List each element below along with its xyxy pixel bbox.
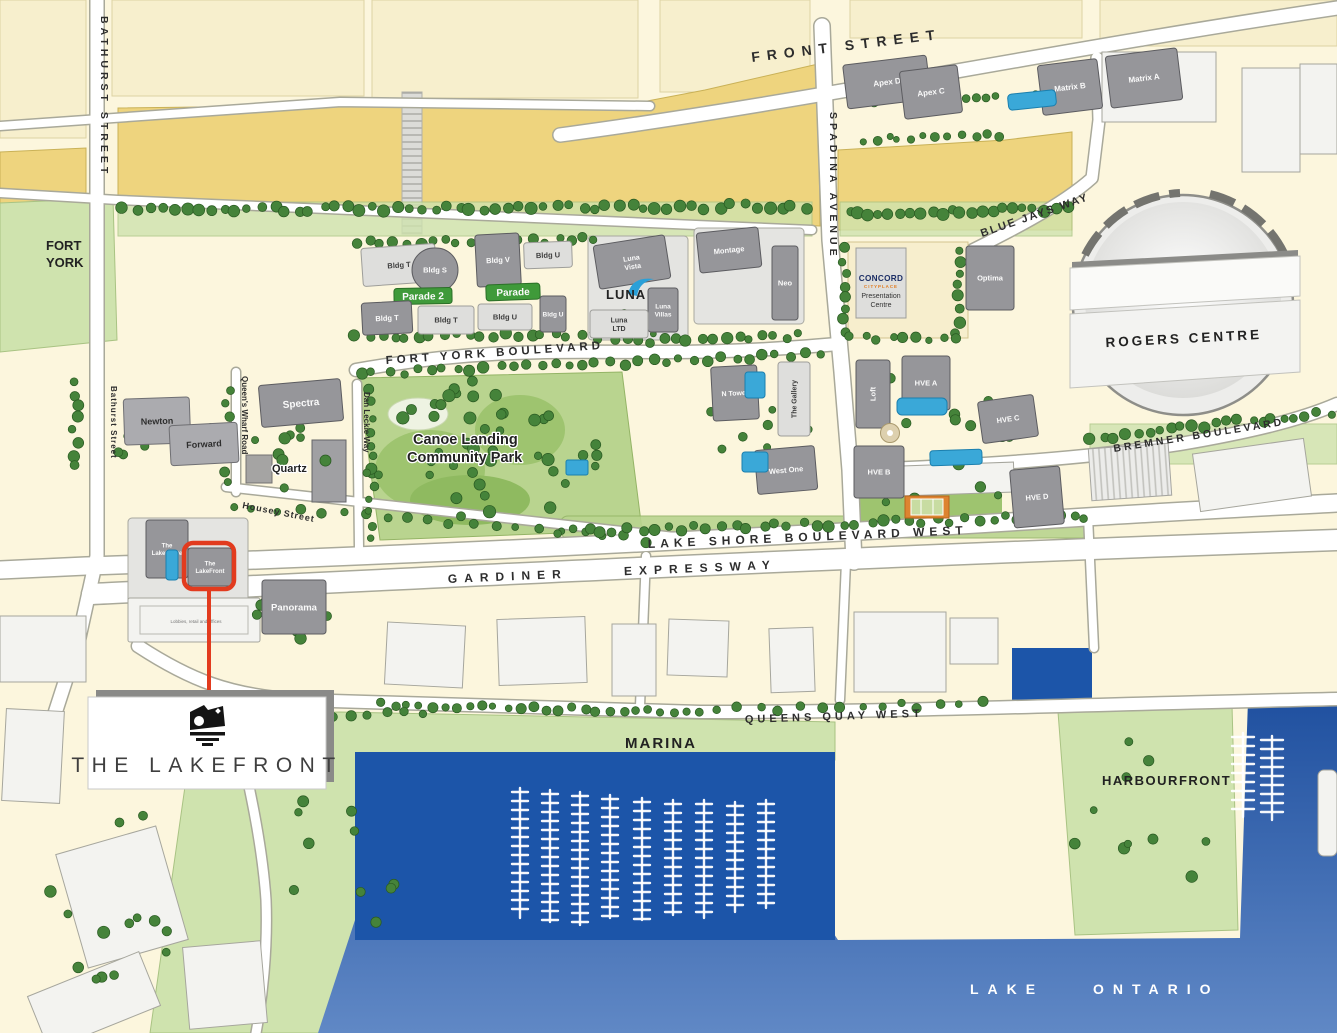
tree-icon: [763, 420, 773, 430]
tree-icon: [1135, 429, 1144, 438]
tree-icon: [400, 707, 409, 716]
tree-icon: [480, 491, 489, 500]
tree-icon: [632, 707, 640, 715]
tree-icon: [745, 355, 755, 365]
tree-icon: [967, 208, 978, 219]
tree-icon: [680, 335, 691, 346]
tree-icon: [289, 885, 298, 894]
tree-icon: [953, 280, 962, 289]
tree-icon: [279, 433, 291, 445]
tree-icon: [943, 133, 950, 140]
building-bldg-u-2: Bldg U: [478, 304, 532, 330]
tree-icon: [92, 975, 100, 983]
queens-wharf-road-label: Queen's Wharf Road: [240, 376, 249, 454]
site-map: Apex DApex CMatrix BMatrix ABldg TBldg S…: [0, 0, 1337, 1033]
tree-icon: [977, 206, 989, 218]
tree-icon: [956, 247, 963, 254]
tree-icon: [302, 206, 312, 216]
lobbies-note-label: Lobbies, retail and offices: [171, 619, 223, 624]
tree-icon: [242, 205, 250, 213]
concord-presentation-centre: CONCORD CITYPLACE Presentation Centre: [856, 248, 906, 318]
tree-icon: [590, 707, 600, 717]
tree-icon: [683, 708, 690, 715]
tree-icon: [356, 887, 365, 896]
tree-icon: [975, 516, 985, 526]
tree-icon: [456, 512, 465, 521]
tree-icon: [620, 360, 631, 371]
bathurst-street-south-label: Bathurst Street: [109, 386, 118, 459]
building-hve-b: HVE B: [854, 446, 904, 498]
tree-icon: [1007, 203, 1018, 214]
tree-icon: [442, 235, 450, 243]
tree-icon: [1083, 433, 1095, 445]
tree-icon: [975, 482, 986, 493]
tree-icon: [490, 204, 501, 215]
tree-icon: [769, 519, 778, 528]
tree-icon: [387, 237, 398, 248]
lake-ontario-label: LAKE ONTARIO: [970, 981, 1220, 997]
building-label: Parade: [496, 287, 530, 299]
tree-icon: [252, 610, 261, 619]
tree-icon: [896, 209, 906, 219]
tree-icon: [589, 236, 597, 244]
building-bldg-s: Bldg S: [412, 248, 458, 292]
tree-icon: [569, 525, 577, 533]
building-label: Bldg U: [536, 250, 560, 260]
tree-icon: [633, 356, 643, 366]
tree-icon: [992, 93, 999, 100]
tree-icon: [443, 390, 455, 402]
tree-icon: [1289, 414, 1297, 422]
tree-icon: [280, 484, 288, 492]
tree-icon: [741, 199, 750, 208]
quartz-label: Quartz: [272, 463, 307, 475]
building-label: Bldg U: [543, 311, 564, 318]
tree-icon: [149, 915, 160, 926]
building-label: Bldg T: [434, 316, 458, 325]
tree-icon: [649, 354, 660, 365]
tree-icon: [433, 206, 441, 214]
tree-icon: [115, 818, 124, 827]
tree-icon: [663, 359, 671, 367]
tree-icon: [68, 425, 76, 433]
tree-icon: [468, 391, 479, 402]
tree-icon: [840, 292, 851, 303]
tree-icon: [383, 707, 392, 716]
building-the-gallery: The Gallery: [778, 362, 810, 436]
tree-icon: [350, 827, 359, 836]
tree-icon: [639, 205, 647, 213]
tree-icon: [628, 199, 639, 210]
tree-icon: [698, 204, 709, 215]
building-label: Panorama: [271, 602, 318, 613]
tree-icon: [794, 329, 801, 336]
tree-icon: [365, 507, 372, 514]
tree-icon: [661, 204, 672, 215]
tree-icon: [367, 368, 375, 376]
tree-icon: [1156, 426, 1164, 434]
tree-icon: [539, 203, 547, 211]
tree-icon: [221, 399, 229, 407]
tree-icon: [392, 334, 400, 342]
tree-icon: [451, 493, 462, 504]
tree-icon: [414, 365, 422, 373]
tree-icon: [591, 462, 599, 470]
tree-icon: [764, 202, 776, 214]
tree-icon: [752, 203, 762, 213]
tree-icon: [529, 702, 539, 712]
tree-icon: [405, 205, 413, 213]
concord-brand: CONCORD: [859, 274, 903, 283]
tree-icon: [341, 508, 348, 515]
tree-icon: [607, 528, 616, 537]
building-bldg-u-1: Bldg U: [524, 241, 573, 269]
tree-icon: [348, 330, 359, 341]
tree-icon: [1202, 837, 1210, 845]
tree-icon: [621, 707, 630, 716]
tree-icon: [873, 136, 882, 145]
tree-icon: [369, 452, 377, 460]
tree-icon: [973, 133, 981, 141]
building-bldg-v: Bldg V: [475, 233, 522, 287]
building-label: Luna: [655, 304, 671, 311]
tree-icon: [920, 132, 926, 138]
tree-icon: [503, 203, 513, 213]
spadina-avenue-label: SPADINA AVENUE: [827, 112, 839, 260]
tree-icon: [561, 333, 569, 341]
tree-icon: [356, 368, 367, 379]
building-forward: Forward: [169, 422, 239, 466]
tree-icon: [73, 437, 84, 448]
tree-icon: [869, 519, 878, 528]
tree-icon: [468, 467, 478, 477]
tree-icon: [258, 203, 267, 212]
concord-line1: Presentation: [861, 293, 900, 300]
tree-icon: [782, 522, 791, 531]
tree-icon: [955, 304, 964, 313]
tree-icon: [553, 706, 563, 716]
building-panorama: Panorama: [262, 580, 326, 634]
tree-icon: [402, 512, 412, 522]
building-loft: Loft: [856, 360, 890, 428]
tree-icon: [962, 95, 970, 103]
tree-icon: [182, 203, 194, 215]
tree-icon: [738, 432, 747, 441]
tree-icon: [529, 414, 541, 426]
tree-icon: [649, 524, 660, 535]
tree-icon: [1175, 422, 1184, 431]
dan-leckie-way-label: Dan Leckie Way: [362, 392, 371, 453]
building-apex-c: Apex C: [899, 65, 962, 120]
tree-icon: [375, 239, 384, 248]
marina-basin: [355, 752, 835, 940]
tree-icon: [322, 203, 330, 211]
tree-icon: [786, 352, 795, 361]
tree-icon: [423, 515, 432, 524]
tree-icon: [915, 208, 926, 219]
building-label: The Gallery: [792, 380, 799, 418]
building-hve-c: HVE C: [977, 394, 1038, 443]
tree-icon: [695, 708, 703, 716]
tree-icon: [644, 705, 652, 713]
tree-icon: [589, 358, 598, 367]
tree-icon: [376, 698, 384, 706]
tree-icon: [953, 207, 965, 219]
tree-icon: [745, 336, 752, 343]
tree-icon: [721, 332, 733, 344]
building-label: Optima: [977, 274, 1004, 283]
tree-icon: [451, 239, 459, 247]
tree-icon: [317, 508, 327, 518]
tree-icon: [231, 504, 238, 511]
tree-icon: [1069, 838, 1080, 849]
tree-icon: [303, 838, 314, 849]
tree-icon: [400, 334, 408, 342]
tree-icon: [1071, 512, 1079, 520]
tree-icon: [64, 910, 72, 918]
tree-icon: [146, 203, 156, 213]
building-the-lakefront-bldg: TheLakeFront: [188, 548, 232, 586]
tree-icon: [674, 200, 686, 212]
tree-icon: [386, 367, 395, 376]
tree-icon: [955, 257, 966, 268]
tree-icon: [474, 332, 484, 342]
harbourfront-label: HARBOURFRONT: [1102, 773, 1231, 788]
marina-label: MARINA: [625, 735, 697, 752]
tree-icon: [467, 703, 474, 710]
tree-icon: [377, 205, 389, 217]
map-canvas: Apex DApex CMatrix BMatrix ABldg TBldg S…: [0, 0, 1337, 1033]
tree-icon: [952, 290, 963, 301]
concord-sub: CITYPLACE: [864, 284, 898, 289]
tree-icon: [1299, 412, 1309, 422]
tree-icon: [1001, 512, 1009, 520]
tree-icon: [444, 519, 453, 528]
building-luna-villas: LunaVillas: [648, 288, 678, 332]
tree-icon: [768, 331, 776, 339]
tree-icon: [599, 200, 610, 211]
tree-icon: [516, 703, 526, 713]
building-label: The: [162, 544, 173, 550]
tree-icon: [73, 962, 84, 973]
tree-icon: [734, 355, 742, 363]
tree-icon: [911, 332, 921, 342]
building-label: Villas: [655, 312, 672, 319]
tree-icon: [492, 521, 501, 530]
tree-icon: [958, 131, 966, 139]
tree-icon: [580, 204, 590, 214]
tree-icon: [343, 201, 354, 212]
building-label: HVE A: [915, 379, 938, 388]
tree-icon: [1018, 204, 1026, 212]
tree-icon: [535, 524, 544, 533]
tree-icon: [983, 130, 992, 139]
tree-icon: [428, 703, 438, 713]
tree-icon: [982, 94, 990, 102]
building-label: Bldg V: [486, 255, 510, 265]
tree-icon: [514, 332, 524, 342]
fort-york-label-2: YORK: [46, 255, 84, 270]
tree-icon: [578, 330, 587, 339]
canoe-landing-label-2: Community Park: [407, 450, 523, 466]
tree-icon: [862, 209, 874, 221]
tree-icon: [98, 926, 110, 938]
tree-icon: [700, 524, 710, 534]
tree-icon: [622, 523, 632, 533]
tree-icon: [640, 527, 649, 536]
tree-icon: [45, 886, 57, 898]
tree-icon: [702, 356, 713, 367]
building-parade-sign: Parade: [486, 283, 541, 301]
tree-icon: [490, 389, 502, 401]
tree-icon: [998, 203, 1007, 212]
tree-icon: [227, 387, 235, 395]
tree-icon: [392, 702, 401, 711]
tree-icon: [800, 518, 809, 527]
tree-icon: [784, 200, 795, 211]
tree-icon: [578, 232, 588, 242]
tree-icon: [70, 461, 79, 470]
tree-icon: [353, 205, 365, 217]
tree-icon: [368, 202, 376, 210]
tree-icon: [713, 706, 721, 714]
tree-icon: [125, 919, 134, 928]
tree-icon: [480, 206, 489, 215]
tree-icon: [542, 706, 551, 715]
tree-icon: [554, 530, 562, 538]
tree-icon: [474, 479, 485, 490]
tree-icon: [419, 710, 427, 718]
tree-icon: [561, 479, 569, 487]
tree-icon: [297, 434, 305, 442]
building-label: LTD: [612, 326, 625, 333]
tree-icon: [878, 515, 890, 527]
tree-icon: [224, 478, 231, 485]
tree-icon: [370, 482, 379, 491]
tree-icon: [542, 453, 554, 465]
tree-icon: [582, 705, 591, 714]
building-luna-ltd: LunaLTD: [590, 310, 648, 338]
tree-icon: [892, 515, 900, 523]
tree-icon: [577, 360, 587, 370]
building-label: Bldg S: [423, 266, 447, 275]
tree-icon: [367, 535, 374, 542]
tree-icon: [73, 400, 84, 411]
building-matrix-a: Matrix A: [1105, 48, 1183, 108]
tree-icon: [544, 502, 556, 514]
tree-icon: [972, 94, 980, 102]
building-optima: Optima: [966, 246, 1014, 310]
tree-icon: [469, 519, 478, 528]
tree-icon: [278, 206, 289, 217]
tree-icon: [926, 337, 932, 343]
tree-icon: [464, 412, 476, 424]
tree-icon: [418, 205, 427, 214]
tree-icon: [1090, 807, 1097, 814]
tree-icon: [159, 203, 168, 212]
tree-icon: [930, 132, 939, 141]
tree-icon: [228, 205, 240, 217]
tree-icon: [606, 357, 615, 366]
tree-icon: [498, 361, 506, 369]
tree-icon: [512, 524, 519, 531]
tree-icon: [463, 365, 474, 376]
building-label: Bldg T: [375, 313, 399, 323]
tree-icon: [1148, 834, 1158, 844]
tree-icon: [960, 513, 968, 521]
tree-icon: [346, 711, 356, 721]
tree-icon: [462, 203, 474, 215]
tree-icon: [956, 270, 963, 277]
tree-icon: [452, 704, 461, 713]
tree-icon: [1312, 407, 1321, 416]
tree-icon: [978, 696, 988, 706]
tree-icon: [898, 699, 905, 706]
building-neo: Neo: [772, 246, 798, 320]
tree-icon: [363, 469, 371, 477]
tree-icon: [717, 522, 727, 532]
tree-icon: [225, 412, 235, 422]
tree-icon: [552, 359, 561, 368]
tree-icon: [566, 362, 573, 369]
tree-icon: [525, 202, 537, 214]
tree-icon: [842, 269, 850, 277]
tree-icon: [295, 808, 303, 816]
tree-icon: [887, 133, 893, 139]
tree-icon: [162, 926, 171, 935]
tree-icon: [897, 332, 907, 342]
canoe-landing-label-1: Canoe Landing: [413, 432, 518, 448]
tree-icon: [606, 707, 615, 716]
tree-icon: [770, 350, 778, 358]
tree-icon: [1080, 515, 1088, 523]
tree-icon: [590, 205, 599, 214]
tree-icon: [298, 796, 309, 807]
tree-icon: [366, 496, 373, 503]
tree-icon: [845, 332, 854, 341]
tree-icon: [708, 334, 718, 344]
tree-icon: [521, 360, 531, 370]
tree-icon: [513, 201, 523, 211]
tree-icon: [893, 136, 899, 142]
tree-icon: [133, 914, 141, 922]
tree-icon: [1119, 428, 1130, 439]
tree-icon: [1143, 755, 1153, 765]
tree-icon: [941, 334, 949, 342]
tree-icon: [874, 210, 882, 218]
bathurst-street-label: BATHURST STREET: [98, 16, 110, 177]
tree-icon: [70, 378, 78, 386]
tree-icon: [660, 333, 670, 343]
building-label: Bldg T: [387, 260, 411, 271]
tree-icon: [591, 440, 601, 450]
tree-icon: [716, 352, 726, 362]
tree-icon: [539, 361, 548, 370]
tree-icon: [441, 201, 451, 211]
tennis-court: [905, 496, 949, 518]
tree-icon: [1328, 411, 1335, 418]
tree-icon: [549, 466, 559, 476]
tree-icon: [665, 523, 673, 531]
tree-icon: [687, 201, 697, 211]
tree-icon: [1186, 871, 1198, 883]
tree-icon: [783, 335, 791, 343]
lakefront-logo-box: THE LAKEFRONT: [71, 690, 342, 789]
building-label: Newton: [141, 416, 174, 427]
tree-icon: [437, 364, 445, 372]
tree-icon: [674, 355, 681, 362]
building-bldg-t-2: Bldg T: [361, 301, 413, 336]
